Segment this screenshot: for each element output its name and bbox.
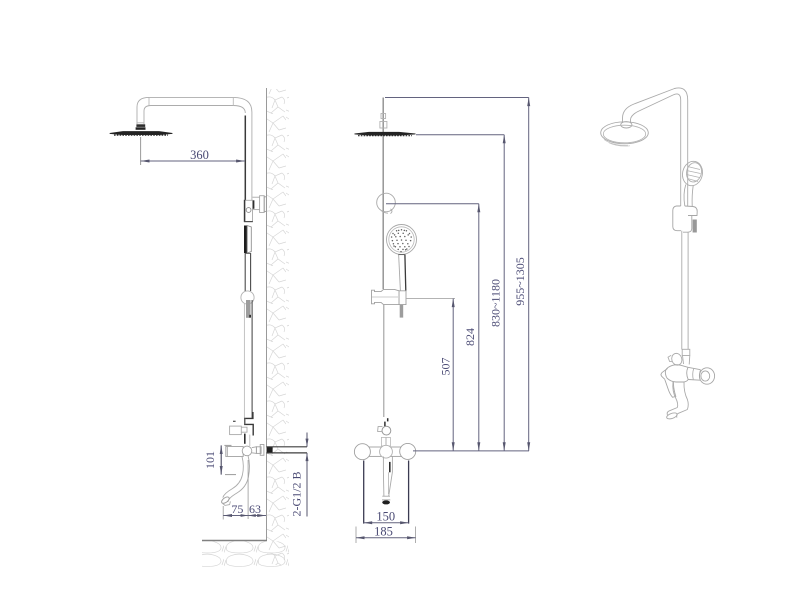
svg-text:101: 101 (203, 451, 217, 469)
svg-text:830~1180: 830~1180 (488, 279, 502, 327)
svg-text:63: 63 (249, 502, 261, 516)
svg-text:2-G1/2 B: 2-G1/2 B (290, 472, 304, 517)
svg-text:360: 360 (190, 148, 209, 162)
svg-text:185: 185 (374, 525, 393, 539)
svg-text:150: 150 (376, 509, 395, 523)
svg-text:824: 824 (463, 328, 477, 346)
svg-text:955~1305: 955~1305 (513, 257, 527, 306)
svg-text:75: 75 (231, 502, 243, 516)
svg-text:507: 507 (438, 358, 452, 376)
